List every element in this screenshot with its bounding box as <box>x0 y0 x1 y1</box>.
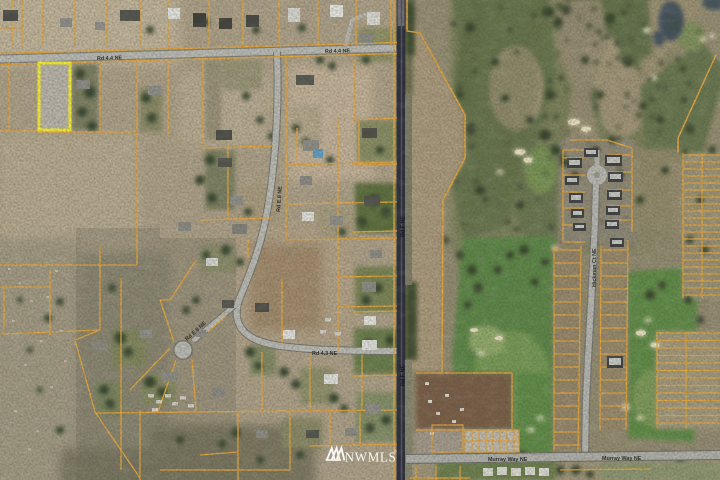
svg-text:Rd 4.3 NE: Rd 4.3 NE <box>312 351 338 357</box>
svg-text:Murray Way NE: Murray Way NE <box>488 457 528 463</box>
svg-text:Murray Way NE: Murray Way NE <box>602 456 642 462</box>
svg-text:Rd F NE: Rd F NE <box>401 216 407 237</box>
svg-text:Rd F NE: Rd F NE <box>401 365 407 386</box>
svg-text:NWMLS: NWMLS <box>345 450 397 465</box>
svg-text:Rd 4.4 NE: Rd 4.4 NE <box>325 48 351 55</box>
svg-text:®: ® <box>394 449 397 454</box>
svg-text:Rd 4.4 NE: Rd 4.4 NE <box>97 55 123 62</box>
svg-text:Hickman Ct NE: Hickman Ct NE <box>592 248 598 287</box>
